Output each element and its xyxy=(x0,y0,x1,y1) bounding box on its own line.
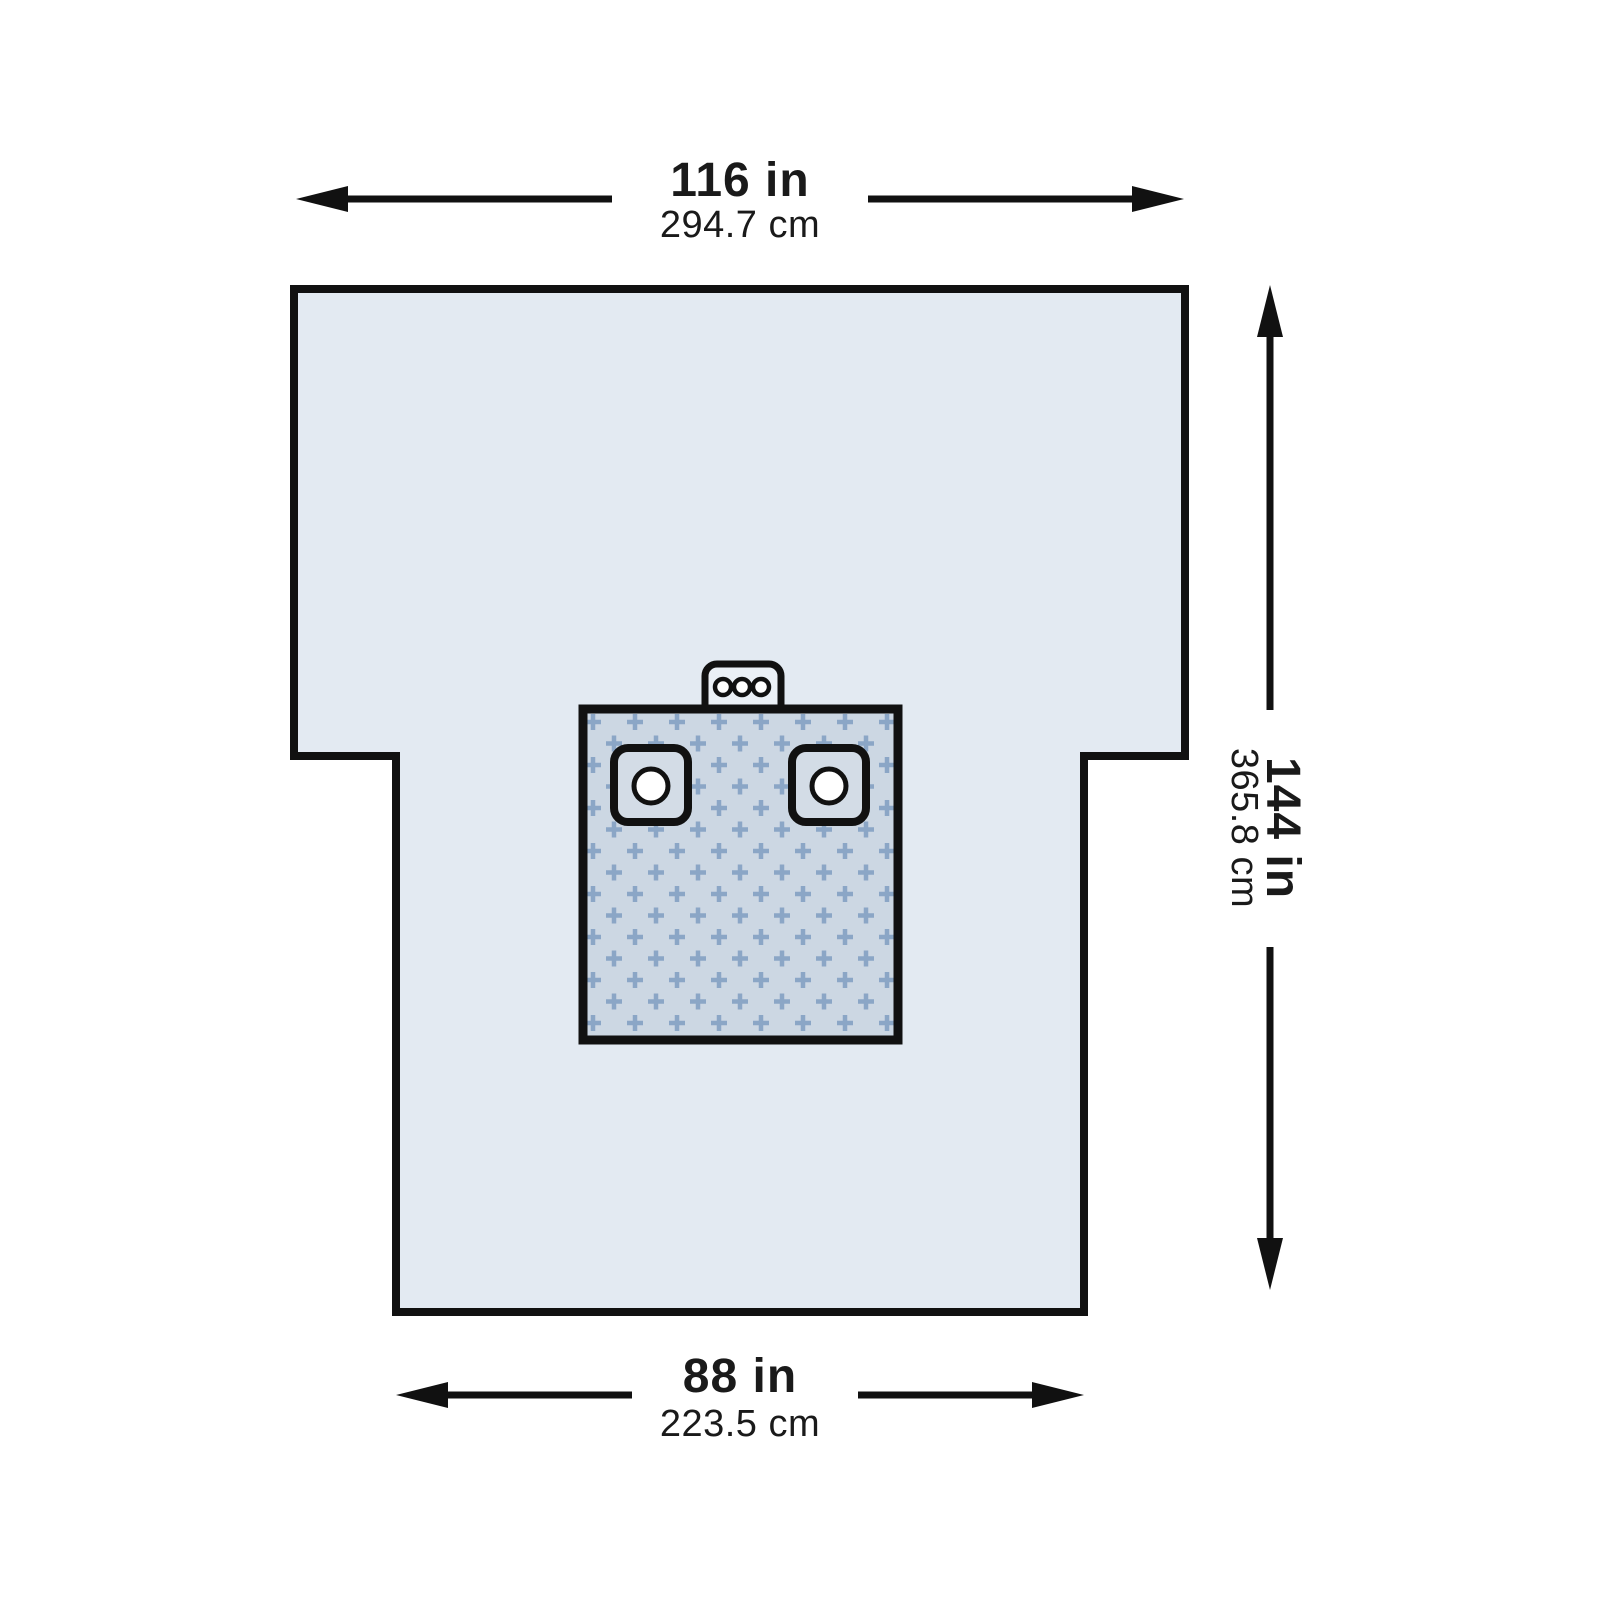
top-width-inches-label: 116 in xyxy=(670,154,809,207)
bottom-width-cm-label: 223.5 cm xyxy=(660,1403,820,1445)
top-dim-arrowhead-left xyxy=(296,186,348,212)
bottom-width-dimension: 88 in 223.5 cm xyxy=(396,1350,1084,1445)
tab-hole-3 xyxy=(753,679,769,695)
fenestration-left-group xyxy=(614,748,688,822)
top-dim-arrowhead-right xyxy=(1132,186,1184,212)
bottom-dim-arrowhead-right xyxy=(1032,1382,1084,1408)
fenestration-right-group xyxy=(792,748,866,822)
tab-hole-1 xyxy=(715,679,731,695)
diagram-svg: 116 in 294.7 cm 144 in 365.8 cm 88 in 22… xyxy=(0,0,1600,1600)
right-height-dimension: 144 in 365.8 cm xyxy=(1223,285,1309,1290)
bottom-dim-arrowhead-left xyxy=(396,1382,448,1408)
bottom-width-inches-label: 88 in xyxy=(683,1350,797,1403)
right-dim-arrowhead-down xyxy=(1257,1238,1283,1290)
fenestration-hole-right xyxy=(812,769,846,803)
top-width-dimension: 116 in 294.7 cm xyxy=(296,154,1184,246)
right-dim-arrowhead-up xyxy=(1257,285,1283,337)
fenestration-hole-left xyxy=(634,769,668,803)
tab-hole-2 xyxy=(734,679,750,695)
drape-dimension-diagram: 116 in 294.7 cm 144 in 365.8 cm 88 in 22… xyxy=(0,0,1600,1600)
top-width-cm-label: 294.7 cm xyxy=(660,204,820,246)
right-height-cm-label: 365.8 cm xyxy=(1223,748,1265,908)
